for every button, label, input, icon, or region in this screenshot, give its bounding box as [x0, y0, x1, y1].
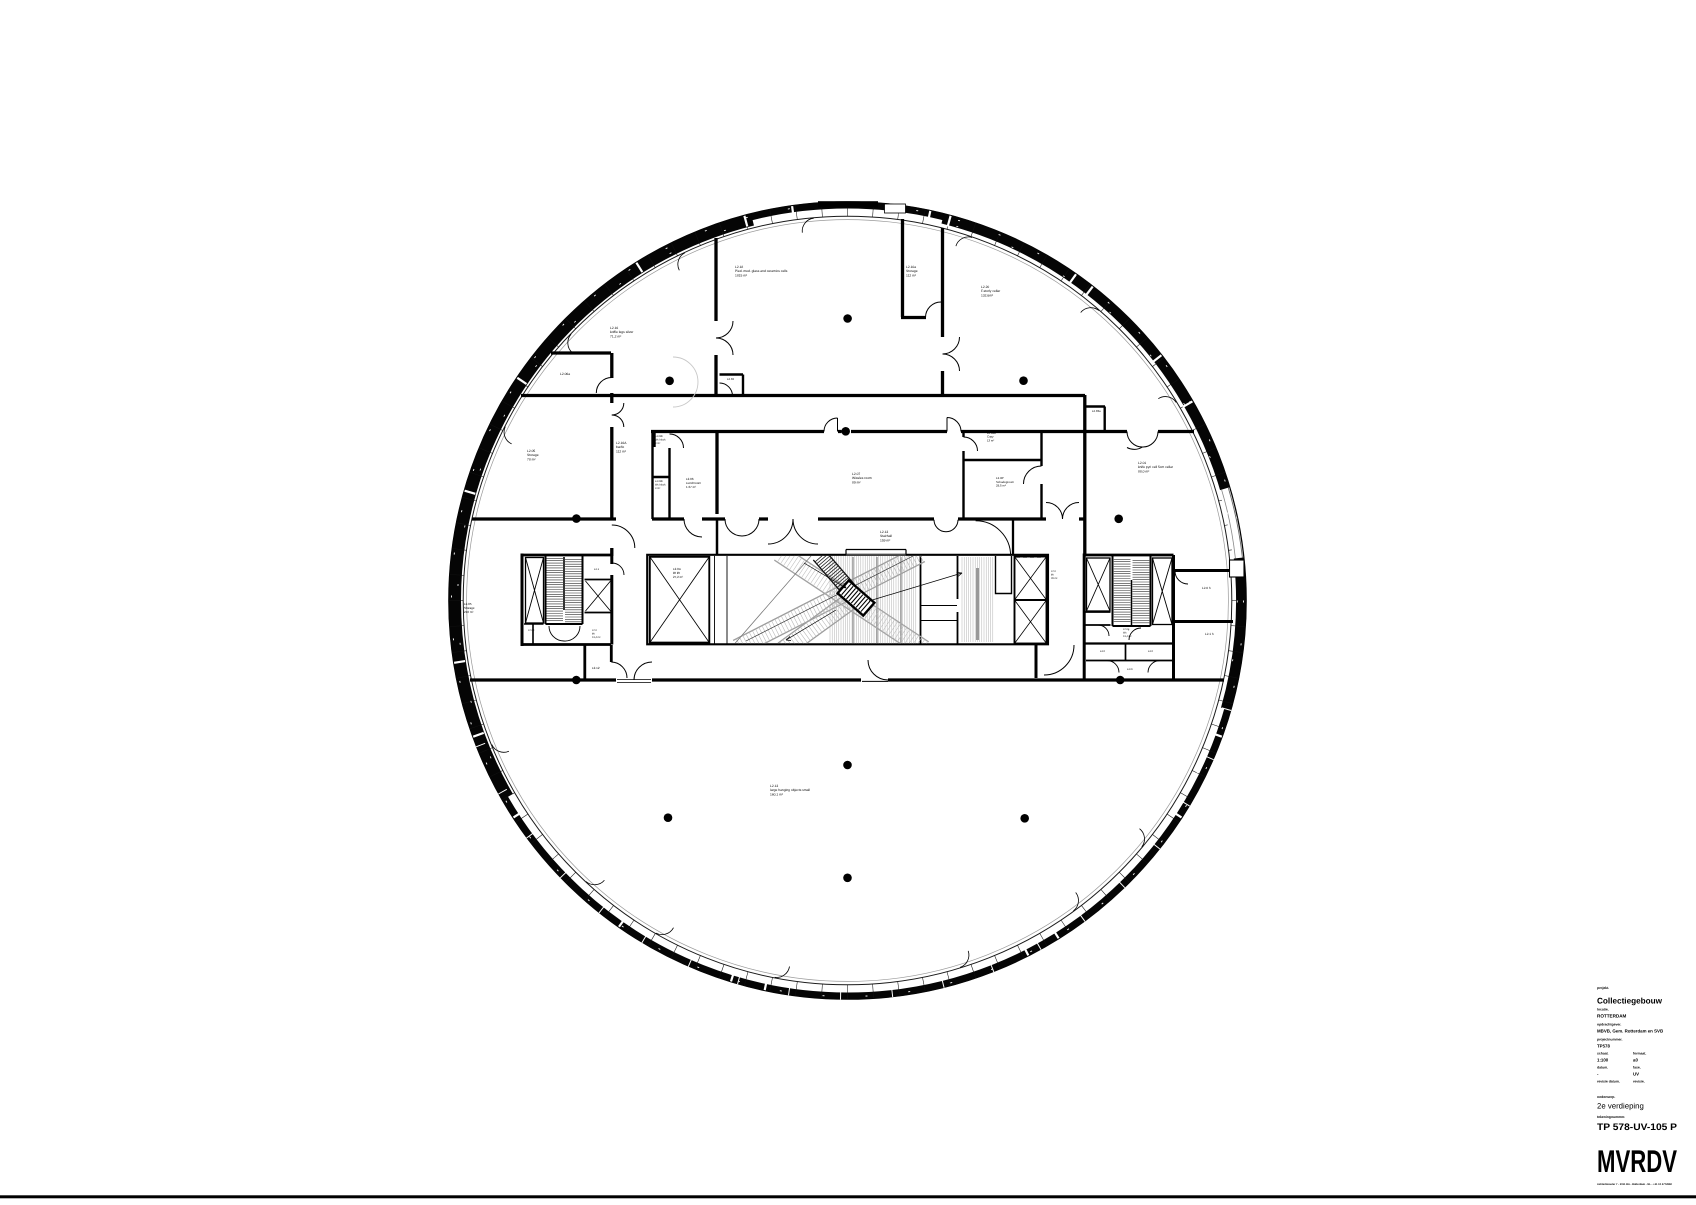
- svg-text:L2.0: L2.0: [1100, 650, 1106, 653]
- svg-text:L2.06a: L2.06a: [560, 372, 570, 376]
- svg-text:formaat.: formaat.: [1633, 1052, 1646, 1056]
- svg-text:a0: a0: [1633, 1058, 1638, 1063]
- svg-text:2e verdieping: 2e verdieping: [1597, 1102, 1644, 1111]
- svg-text:TP 578-UV-105 P: TP 578-UV-105 P: [1597, 1122, 1678, 1133]
- svg-text:L2.1 h: L2.1 h: [1205, 632, 1214, 636]
- svg-text:L2.02: L2.02: [727, 377, 734, 381]
- svg-text:revisie.: revisie.: [1633, 1080, 1645, 1084]
- svg-text:L2.03a: L2.03a: [1092, 409, 1101, 413]
- svg-text:schaal.: schaal.: [1597, 1052, 1609, 1056]
- svg-text:L2.12: L2.12: [592, 666, 600, 670]
- svg-text:L2.0d: L2.0d: [528, 629, 535, 632]
- svg-text:MBVB, Gem. Rotterdam en SVB: MBVB, Gem. Rotterdam en SVB: [1597, 1029, 1663, 1034]
- svg-text:opdrachtgever.: opdrachtgever.: [1597, 1023, 1621, 1027]
- svg-text:fase.: fase.: [1633, 1066, 1641, 1070]
- svg-text:L2.0 h: L2.0 h: [1202, 586, 1211, 590]
- svg-text:datum.: datum.: [1597, 1066, 1608, 1070]
- svg-text:tekeningnummer.: tekeningnummer.: [1597, 1115, 1625, 1119]
- svg-text:L2.1: L2.1: [594, 568, 600, 571]
- svg-text:L2.0i: L2.0i: [1127, 668, 1133, 671]
- svg-text:locatie.: locatie.: [1597, 1008, 1609, 1012]
- svg-text:ROTTERDAM: ROTTERDAM: [1597, 1014, 1627, 1019]
- svg-text:revisie datum.: revisie datum.: [1597, 1080, 1620, 1084]
- svg-text:projectnummer.: projectnummer.: [1597, 1038, 1622, 1042]
- svg-text:projekt.: projekt.: [1597, 986, 1609, 990]
- svg-text:Collectiegebouw: Collectiegebouw: [1597, 997, 1663, 1006]
- svg-text:UV: UV: [1633, 1072, 1639, 1077]
- svg-text:1:100: 1:100: [1597, 1058, 1609, 1063]
- svg-text:TP578: TP578: [1597, 1044, 1610, 1049]
- svg-text:L2.10aStorage112 m²: L2.10aStorage112 m²: [906, 265, 918, 277]
- svg-text:Achterklooster 7 - 3011 RA - R: Achterklooster 7 - 3011 RA - Rotterdam -…: [1597, 1183, 1672, 1186]
- svg-text:L2.0: L2.0: [1148, 650, 1154, 653]
- svg-text:onderwerp.: onderwerp.: [1597, 1095, 1615, 1099]
- svg-text:MVRDV: MVRDV: [1597, 1143, 1677, 1179]
